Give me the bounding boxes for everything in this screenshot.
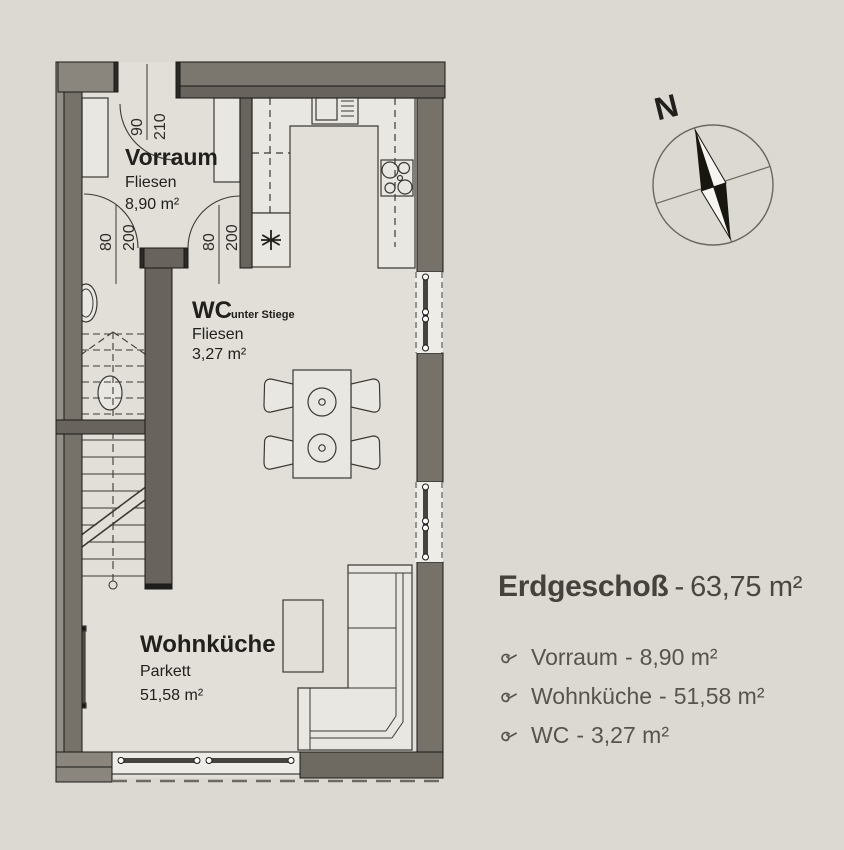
legend-item-area: 3,27 m² <box>591 722 669 749</box>
wall-right-2 <box>417 353 443 482</box>
toilet <box>98 376 122 410</box>
wall-end-cap <box>145 584 172 589</box>
room-area-wohnkueche: 51,58 m² <box>140 687 204 704</box>
entry-door-height: 210 <box>152 113 169 140</box>
room-label-wohnkueche: Wohnküche <box>140 631 276 658</box>
legend-item-label: Vorraum <box>531 644 618 671</box>
flourish-bullet-icon <box>498 690 518 705</box>
wall-left <box>64 62 82 752</box>
compass-north-label: N <box>651 87 682 128</box>
legend-title-area: 63,75 m² <box>690 571 802 603</box>
legend-item-wohnkueche: Wohnküche-51,58 m² <box>498 677 828 716</box>
wall-top-outer <box>176 62 445 86</box>
legend-item-label: Wohnküche <box>531 683 652 710</box>
compass: N <box>637 87 788 261</box>
room-area-vorraum: 8,90 m² <box>125 196 180 213</box>
legend-item-vorraum: Vorraum-8,90 m² <box>498 638 828 677</box>
window-right-upper <box>415 272 443 353</box>
legend-item-label: WC <box>531 722 569 749</box>
wall-vorraum-kitchen <box>240 98 252 268</box>
compass-needle <box>637 109 788 260</box>
chair <box>351 436 380 469</box>
legend-title: Erdgeschoß-63,75 m² <box>498 570 828 604</box>
room-label-wc-suffix: unter Stiege <box>231 309 295 321</box>
wall-right-1 <box>417 98 443 272</box>
wall-left-outer <box>56 62 64 774</box>
flourish-bullet-icon <box>498 729 518 744</box>
room-floor-wc: Fliesen <box>192 326 244 343</box>
room-area-wc: 3,27 m² <box>192 346 247 363</box>
chair <box>264 436 293 469</box>
coffee-table <box>283 600 323 672</box>
wall-vorraum-pier <box>140 248 188 268</box>
chair <box>351 379 380 412</box>
wall-top-stub <box>58 62 118 92</box>
entry-door-width: 90 <box>129 118 146 136</box>
legend: Erdgeschoß-63,75 m² Vorraum-8,90 m² Wohn… <box>498 570 828 755</box>
flourish-bullet-icon <box>498 651 518 666</box>
left-door-width: 80 <box>98 233 115 251</box>
room-label-wc: WC <box>192 297 232 324</box>
right-door-height: 200 <box>224 224 241 251</box>
wall-stair-living <box>145 268 172 588</box>
wall-top-inner <box>176 86 445 98</box>
floorplan-page: 90 210 80 200 80 200 Vorraum Fliesen 8,9… <box>0 0 844 850</box>
window-bottom <box>112 752 300 774</box>
wardrobe-right <box>214 98 240 182</box>
room-floor-wohnkueche: Parkett <box>140 663 191 680</box>
legend-item-wc: WC-3,27 m² <box>498 716 828 755</box>
window-right-lower <box>415 482 443 562</box>
right-door-width: 80 <box>201 233 218 251</box>
legend-title-name: Erdgeschoß <box>498 570 668 603</box>
legend-item-area: 8,90 m² <box>640 644 718 671</box>
legend-items: Vorraum-8,90 m² Wohnküche-51,58 m² WC-3,… <box>498 638 828 755</box>
chair <box>264 379 293 412</box>
wall-bottom-right <box>300 752 443 778</box>
wall-wc-stair <box>56 420 145 434</box>
room-floor-vorraum: Fliesen <box>125 174 177 191</box>
room-label-vorraum: Vorraum <box>125 144 218 170</box>
wall-right-3 <box>417 562 443 752</box>
legend-title-separator: - <box>668 570 690 603</box>
left-door-height: 200 <box>121 224 138 251</box>
wardrobe-left <box>82 98 108 177</box>
legend-item-area: 51,58 m² <box>674 683 765 710</box>
